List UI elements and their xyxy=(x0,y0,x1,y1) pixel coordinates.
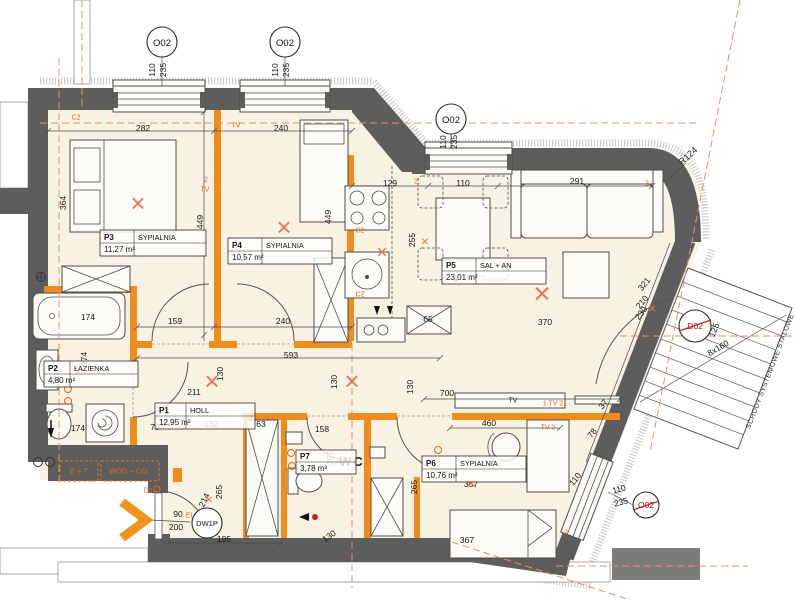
window-tag-3: O02 xyxy=(436,104,466,134)
bathtub xyxy=(33,293,125,339)
dimension-text: 110 xyxy=(438,135,448,149)
floor-plan-page: SCHODY SYSTEMOWE STALOWE xyxy=(0,0,796,600)
dimension-text: 90 xyxy=(173,509,183,519)
annotation-label: WOD + CO xyxy=(109,467,147,476)
window-tag-1: O02 xyxy=(147,27,177,57)
dimension-text: 110 xyxy=(456,178,470,188)
svg-text:ŁAZIENKA: ŁAZIENKA xyxy=(74,364,109,373)
radius-label: R124 xyxy=(677,145,700,167)
dimension-text: 367 xyxy=(460,535,474,545)
svg-text:P7: P7 xyxy=(300,452,310,461)
dimension-text: 265 xyxy=(409,480,419,494)
room-label-p1: P1 HOLL 12,95 m² xyxy=(155,403,255,429)
dimension-text: 110 xyxy=(147,63,157,77)
annotation-label: TV xyxy=(201,187,210,194)
svg-text:DW1P: DW1P xyxy=(196,519,218,528)
window-tag-2: O02 xyxy=(270,27,300,57)
dimension-text: 593 xyxy=(284,350,298,360)
dimension-text: 240 xyxy=(276,316,290,326)
coffee-table xyxy=(563,252,609,298)
annotation-label: C2 xyxy=(356,228,365,235)
annotation-label: × xyxy=(276,212,291,242)
room-label-p2: P2 ŁAZIENKA 4,80 m² xyxy=(44,361,138,387)
floor-plan-canvas: SCHODY SYSTEMOWE STALOWE xyxy=(0,0,796,600)
annotation-label: × xyxy=(205,491,213,507)
annotation-label: × xyxy=(344,366,359,396)
svg-text:P6: P6 xyxy=(426,459,436,468)
svg-text:P1: P1 xyxy=(159,406,169,415)
dimension-text: 129 xyxy=(383,178,397,188)
annotation-label: 2 xyxy=(414,179,418,186)
dimension-text: 110 xyxy=(270,63,280,77)
annotation-label: × xyxy=(376,243,387,264)
dimension-text: 130 xyxy=(405,380,415,394)
room-label-p4: P4 SYPIALNIA 10,57 m² xyxy=(228,238,332,264)
dimension-text: 174 xyxy=(71,423,85,433)
room-label-p7: P7 3,78 m² xyxy=(296,450,356,474)
svg-text:P3: P3 xyxy=(104,233,114,242)
wardrobe-p4 xyxy=(314,258,348,342)
annotation-label: 1 TV 2 xyxy=(543,401,564,408)
annotation-label: C2 xyxy=(72,115,81,122)
svg-text:3,78 m²: 3,78 m² xyxy=(300,464,327,473)
room-label-p6: P6 SYPIALNIA 10,76 m² xyxy=(422,456,526,482)
svg-text:SAL + AN: SAL + AN xyxy=(480,261,512,270)
dimension-text: 449 xyxy=(195,215,205,229)
annotation-label: TV 2 xyxy=(541,425,556,432)
dimension-text: 449 xyxy=(323,210,333,224)
wardrobe-hall-2 xyxy=(371,478,403,536)
dimension-text: 460 xyxy=(482,418,496,428)
red-dot xyxy=(312,514,318,520)
dimension-text: 255 xyxy=(407,233,417,247)
svg-text:SYPIALNIA: SYPIALNIA xyxy=(460,459,498,468)
wardrobe-hall-1 xyxy=(246,420,278,536)
annotation-label: × xyxy=(204,366,219,396)
dimension-text: 370 xyxy=(538,317,552,327)
svg-text:P2: P2 xyxy=(48,364,58,373)
annotation-label: 2 xyxy=(645,181,649,188)
svg-text:P4: P4 xyxy=(232,241,242,250)
corridor-basin xyxy=(370,447,385,458)
room-label-p3: P3 SYPIALNIA 11,27 m² xyxy=(100,230,206,256)
dimension-text: 159 xyxy=(168,316,182,326)
svg-text:HOLL: HOLL xyxy=(190,406,209,415)
annotation-label: × xyxy=(648,300,656,316)
entry-door-tag: DW1P xyxy=(192,508,222,538)
dimension-text: 240 xyxy=(274,123,288,133)
dimension-text: 130 xyxy=(329,375,339,389)
annotation-label: Dz xyxy=(144,488,153,495)
dimension-text: 282 xyxy=(136,123,150,133)
dimension-text: 265 xyxy=(214,485,224,499)
dimension-text: 364 xyxy=(58,196,68,210)
dimension-text: 63 xyxy=(256,419,266,429)
annotation-label: 2 xyxy=(564,530,568,537)
annotation-label: 2 xyxy=(204,177,208,184)
svg-text:10,76 m²: 10,76 m² xyxy=(426,471,458,480)
dimension-text: 235 xyxy=(158,63,168,77)
entrance-arrow xyxy=(122,502,146,538)
entry-door-leaf xyxy=(155,493,162,539)
annotation-label: C2 xyxy=(356,292,365,299)
annotation-label: TV xyxy=(509,398,518,405)
dimension-text: 200 xyxy=(169,522,183,532)
bed-p4 xyxy=(300,120,348,222)
svg-text:11,27 m²: 11,27 m² xyxy=(104,245,135,254)
svg-text:23,01 m²: 23,01 m² xyxy=(446,273,478,282)
svg-text:SYPIALNIA: SYPIALNIA xyxy=(266,241,304,250)
bed-p3 xyxy=(70,140,176,232)
dimension-text: 174 xyxy=(81,312,95,322)
stairs-door-tag-crossed: D02 xyxy=(679,310,711,342)
dimension-text: 110 xyxy=(611,482,627,495)
window-tag-4-crossed: O02 xyxy=(633,492,659,518)
svg-text:O02: O02 xyxy=(442,115,460,126)
svg-text:O02: O02 xyxy=(276,38,294,49)
annotation-label: × xyxy=(130,188,145,218)
washing-machine xyxy=(86,404,124,442)
svg-text:O02: O02 xyxy=(153,38,171,49)
dimension-text: 211 xyxy=(187,387,201,397)
dimension-text: 291 xyxy=(570,176,584,186)
dimension-text: 235 xyxy=(449,135,459,149)
svg-text:12,95 m²: 12,95 m² xyxy=(159,418,191,427)
dimension-text: 235 xyxy=(613,495,630,508)
annotation-label: × xyxy=(421,233,429,249)
svg-text:10,57 m²: 10,57 m² xyxy=(232,253,264,262)
sofa xyxy=(511,170,663,238)
svg-text:4,80 m²: 4,80 m² xyxy=(48,376,75,385)
wardrobe-p3 xyxy=(62,266,130,292)
annotation-label: E + T xyxy=(70,467,88,476)
wc-basin xyxy=(286,432,302,444)
dimension-text: 700 xyxy=(440,388,454,398)
bed-p6 xyxy=(450,510,556,558)
dimension-text: 65 xyxy=(423,314,433,324)
room-label-p5: P5 SAL + AN 23,01 m² xyxy=(442,258,546,284)
exterior-wall-block xyxy=(612,548,700,580)
dimension-text: 195 xyxy=(217,534,231,544)
dimension-text: 235 xyxy=(281,63,291,77)
svg-text:SYPIALNIA: SYPIALNIA xyxy=(138,233,176,242)
dimension-text: 158 xyxy=(315,424,329,434)
window-1 xyxy=(113,80,205,112)
svg-text:P5: P5 xyxy=(446,261,456,270)
annotation-label: TV xyxy=(232,123,241,130)
